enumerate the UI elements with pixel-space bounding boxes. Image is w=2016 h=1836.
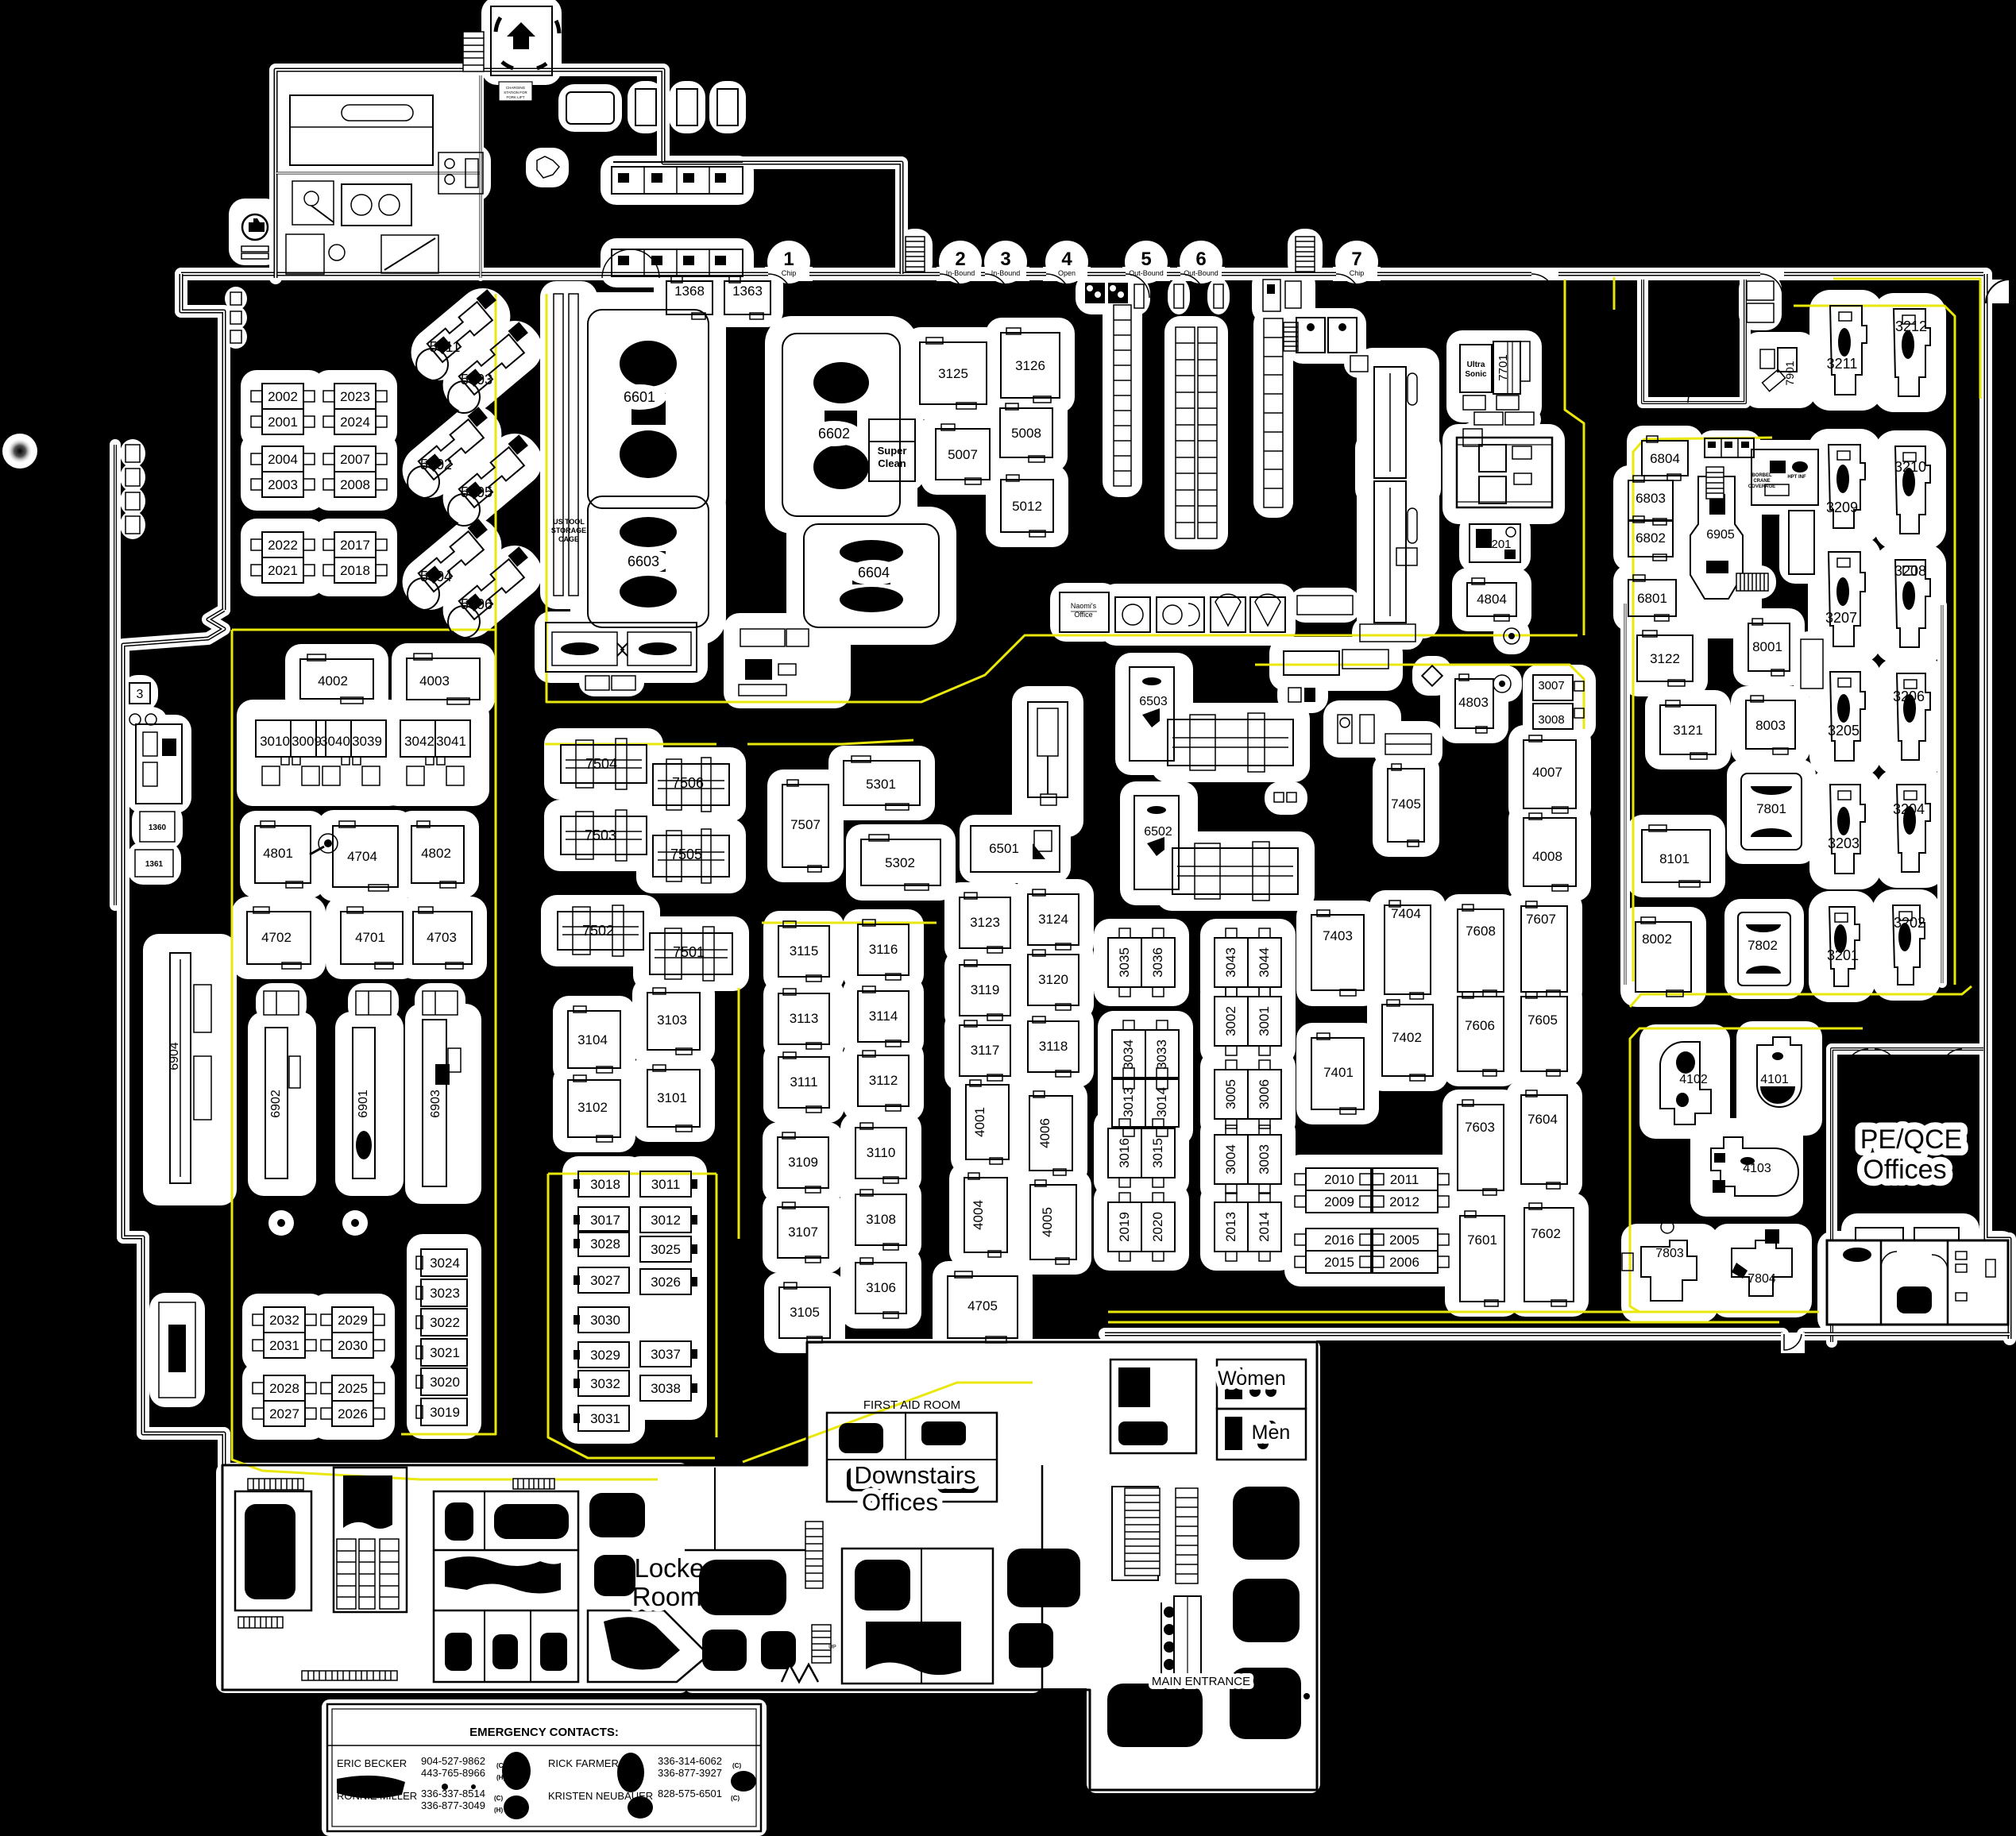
svg-text:5011: 5011 (430, 339, 461, 355)
svg-text:3018: 3018 (590, 1177, 620, 1192)
svg-text:Naomi's: Naomi's (1071, 602, 1097, 610)
svg-text:2027: 2027 (269, 1406, 299, 1421)
svg-text:2: 2 (955, 249, 965, 270)
svg-text:904-527-9862: 904-527-9862 (421, 1755, 485, 1767)
svg-text:3025: 3025 (651, 1242, 681, 1257)
svg-text:Men: Men (1252, 1421, 1291, 1444)
svg-text:336-314-6062: 336-314-6062 (658, 1755, 722, 1767)
svg-text:3005: 3005 (1223, 1079, 1238, 1109)
svg-text:7403: 7403 (1323, 928, 1353, 943)
svg-text:8001: 8001 (1752, 639, 1782, 654)
svg-text:7502: 7502 (582, 923, 614, 939)
svg-text:7603: 7603 (1465, 1120, 1495, 1135)
svg-text:3024: 3024 (430, 1255, 460, 1271)
svg-text:Offices: Offices (862, 1488, 938, 1516)
svg-text:2018: 2018 (340, 563, 370, 578)
svg-text:2024: 2024 (340, 415, 370, 430)
svg-text:2029: 2029 (338, 1313, 368, 1328)
svg-text:3028: 3028 (590, 1236, 620, 1252)
svg-text:3119: 3119 (971, 982, 1000, 997)
svg-text:3117: 3117 (971, 1043, 1000, 1058)
svg-text:5002: 5002 (420, 457, 452, 472)
svg-text:2021: 2021 (268, 563, 298, 578)
svg-text:3009: 3009 (292, 734, 322, 749)
svg-text:1361: 1361 (145, 860, 164, 869)
svg-text:CRANE: CRANE (1753, 479, 1770, 484)
svg-text:6905: 6905 (1706, 528, 1735, 542)
svg-text:8003: 8003 (1755, 718, 1786, 733)
svg-text:3209: 3209 (1826, 499, 1858, 515)
svg-text:4006: 4006 (1037, 1118, 1052, 1148)
svg-text:(C): (C) (731, 1795, 740, 1802)
svg-text:7506: 7506 (672, 775, 704, 791)
svg-text:Offices: Offices (1863, 1155, 1946, 1185)
svg-text:2022: 2022 (268, 538, 298, 553)
svg-text:5005: 5005 (461, 484, 492, 500)
svg-text:6901: 6901 (357, 1090, 370, 1118)
svg-text:336-877-3927: 336-877-3927 (658, 1767, 722, 1779)
svg-text:STORAGE: STORAGE (551, 526, 586, 534)
svg-text:4705: 4705 (967, 1298, 998, 1313)
svg-text:3106: 3106 (866, 1280, 896, 1295)
svg-text:Out-Bound: Out-Bound (1184, 269, 1218, 277)
svg-text:3031: 3031 (590, 1411, 620, 1426)
svg-text:FIRST AID ROOM: FIRST AID ROOM (863, 1398, 960, 1412)
svg-text:Sonic: Sonic (1465, 370, 1487, 379)
svg-text:7602: 7602 (1531, 1226, 1561, 1241)
svg-text:3021: 3021 (430, 1345, 460, 1360)
svg-text:6903: 6903 (429, 1090, 442, 1118)
svg-text:2007: 2007 (340, 452, 370, 467)
svg-text:7505: 7505 (670, 847, 702, 862)
svg-text:3210: 3210 (1894, 459, 1926, 475)
svg-text:Chip: Chip (1350, 269, 1365, 277)
svg-text:6802: 6802 (1636, 530, 1666, 546)
svg-text:3108: 3108 (866, 1212, 896, 1227)
svg-text:3001: 3001 (1257, 1006, 1272, 1036)
svg-text:6902: 6902 (269, 1090, 283, 1118)
svg-text:3115: 3115 (790, 943, 819, 958)
svg-text:3103: 3103 (657, 1012, 687, 1028)
svg-text:2016: 2016 (1324, 1232, 1354, 1248)
svg-text:(C): (C) (494, 1795, 503, 1802)
svg-text:7501: 7501 (673, 944, 705, 960)
svg-text:4004: 4004 (971, 1200, 986, 1230)
svg-text:3006: 3006 (1257, 1079, 1272, 1109)
svg-text:3027: 3027 (590, 1273, 620, 1288)
svg-text:2028: 2028 (269, 1381, 299, 1396)
svg-text:3114: 3114 (869, 1009, 898, 1024)
svg-text:3019: 3019 (430, 1405, 460, 1420)
svg-text:2011: 2011 (1390, 1172, 1419, 1187)
svg-text:6602: 6602 (818, 426, 850, 442)
svg-text:3004: 3004 (1223, 1144, 1238, 1174)
svg-text:3044: 3044 (1257, 947, 1272, 978)
svg-text:5006: 5006 (461, 596, 492, 612)
svg-text:HPT INF: HPT INF (1787, 475, 1806, 480)
svg-text:4703: 4703 (427, 930, 457, 945)
svg-text:6804: 6804 (1650, 451, 1680, 466)
svg-text:ERIC BECKER: ERIC BECKER (337, 1757, 407, 1769)
svg-text:3109: 3109 (788, 1155, 818, 1170)
svg-text:2009: 2009 (1324, 1194, 1354, 1209)
svg-text:3205: 3205 (1828, 723, 1860, 739)
svg-text:2008: 2008 (340, 477, 370, 492)
svg-text:Open: Open (1058, 269, 1076, 277)
svg-text:7901: 7901 (1783, 361, 1796, 385)
svg-text:4101: 4101 (1760, 1073, 1789, 1086)
svg-text:1363: 1363 (732, 283, 763, 299)
svg-text:5: 5 (1141, 249, 1151, 270)
svg-text:3039: 3039 (352, 734, 382, 749)
svg-text:7404: 7404 (1391, 906, 1421, 921)
svg-text:7402: 7402 (1392, 1030, 1422, 1045)
svg-text:3206: 3206 (1893, 688, 1925, 704)
svg-text:3207: 3207 (1825, 610, 1857, 626)
svg-text:4005: 4005 (1040, 1207, 1055, 1237)
svg-text:8002: 8002 (1642, 931, 1672, 947)
svg-text:4801: 4801 (263, 846, 293, 861)
svg-text:FORK LIFT: FORK LIFT (506, 95, 524, 99)
svg-text:2015: 2015 (1324, 1255, 1354, 1270)
svg-text:2023: 2023 (340, 389, 370, 404)
svg-text:3034: 3034 (1121, 1039, 1136, 1070)
svg-text:Ultra: Ultra (1467, 361, 1485, 369)
svg-text:6: 6 (1195, 249, 1206, 270)
svg-text:2013: 2013 (1223, 1212, 1238, 1242)
svg-text:3203: 3203 (1828, 835, 1860, 851)
svg-text:2004: 2004 (268, 452, 298, 467)
svg-text:3120: 3120 (1038, 972, 1068, 987)
svg-text:Out-Bound: Out-Bound (1129, 269, 1164, 277)
svg-text:2005: 2005 (1389, 1232, 1419, 1248)
svg-text:Super: Super (878, 445, 907, 457)
svg-text:4008: 4008 (1532, 849, 1562, 864)
svg-text:7701: 7701 (1497, 354, 1510, 380)
svg-text:3002: 3002 (1223, 1006, 1238, 1036)
svg-text:COVERAGE: COVERAGE (1748, 484, 1775, 489)
svg-text:2025: 2025 (338, 1381, 368, 1396)
svg-text:3043: 3043 (1223, 947, 1238, 978)
svg-text:CHARGING: CHARGING (506, 86, 526, 90)
svg-text:Chip: Chip (782, 269, 797, 277)
svg-text:2006: 2006 (1389, 1255, 1419, 1270)
svg-text:3014: 3014 (1154, 1087, 1169, 1117)
svg-text:6904: 6904 (168, 1042, 181, 1070)
svg-text:3123: 3123 (970, 915, 1000, 930)
svg-text:3: 3 (1000, 249, 1010, 270)
svg-text:4102: 4102 (1679, 1073, 1708, 1086)
svg-text:7405: 7405 (1391, 796, 1421, 812)
svg-text:3042: 3042 (404, 734, 434, 749)
svg-text:3125: 3125 (938, 366, 968, 381)
svg-text:3202: 3202 (1894, 915, 1925, 931)
svg-text:336-877-3049: 336-877-3049 (421, 1799, 485, 1811)
svg-text:7804: 7804 (1748, 1272, 1776, 1286)
svg-text:4701: 4701 (355, 930, 385, 945)
svg-text:UP: UP (828, 1645, 836, 1650)
svg-text:7606: 7606 (1465, 1018, 1495, 1033)
svg-text:2001: 2001 (268, 415, 298, 430)
svg-text:3101: 3101 (657, 1090, 687, 1105)
svg-text:RICK FARMER: RICK FARMER (548, 1757, 619, 1769)
svg-text:4704: 4704 (347, 849, 377, 864)
svg-text:3003: 3003 (1257, 1144, 1272, 1174)
svg-text:3110: 3110 (867, 1145, 896, 1160)
svg-text:3112: 3112 (869, 1073, 898, 1088)
svg-text:MAIN ENTRANCE: MAIN ENTRANCE (1152, 1675, 1250, 1688)
svg-text:3017: 3017 (590, 1213, 620, 1228)
svg-text:2014: 2014 (1257, 1212, 1272, 1242)
svg-text:3032: 3032 (590, 1376, 620, 1391)
svg-text:3023: 3023 (430, 1286, 460, 1301)
svg-text:Office: Office (1074, 611, 1092, 619)
svg-text:7801: 7801 (1756, 801, 1786, 816)
svg-text:3008: 3008 (1538, 713, 1564, 727)
svg-text:3016: 3016 (1117, 1138, 1132, 1168)
svg-text:4803: 4803 (1458, 695, 1489, 710)
svg-text:6603: 6603 (628, 553, 659, 569)
svg-text:(C): (C) (732, 1762, 741, 1769)
svg-text:2019: 2019 (1117, 1212, 1132, 1242)
svg-text:3010: 3010 (260, 734, 290, 749)
svg-text:7608: 7608 (1466, 924, 1496, 939)
svg-text:In-Bound: In-Bound (991, 269, 1021, 277)
svg-text:5302: 5302 (885, 855, 915, 870)
svg-text:US TOOL: US TOOL (553, 518, 585, 526)
svg-text:3037: 3037 (651, 1347, 681, 1362)
svg-text:3029: 3029 (590, 1348, 620, 1363)
svg-text:Clean: Clean (878, 457, 906, 469)
svg-text:7507: 7507 (790, 817, 821, 832)
svg-text:5004: 5004 (420, 569, 452, 584)
svg-text:3041: 3041 (436, 734, 466, 749)
svg-text:3: 3 (137, 688, 144, 701)
svg-text:7: 7 (1351, 249, 1361, 270)
svg-text:4001: 4001 (972, 1107, 987, 1137)
svg-text:In-Bound: In-Bound (946, 269, 975, 277)
svg-text:3121: 3121 (1673, 723, 1703, 738)
svg-text:7601: 7601 (1467, 1232, 1497, 1248)
svg-text:5008: 5008 (1011, 426, 1041, 441)
svg-text:3030: 3030 (590, 1313, 620, 1328)
svg-text:7605: 7605 (1527, 1012, 1558, 1028)
svg-text:3212: 3212 (1895, 318, 1927, 334)
svg-text:3201: 3201 (1827, 947, 1859, 963)
svg-text:7604: 7604 (1527, 1112, 1558, 1127)
svg-text:3035: 3035 (1117, 947, 1132, 978)
svg-text:7803: 7803 (1655, 1247, 1684, 1260)
svg-text:3015: 3015 (1150, 1138, 1165, 1168)
svg-text:4702: 4702 (261, 930, 292, 945)
svg-text:(H): (H) (494, 1807, 503, 1814)
svg-text:STATION FOR: STATION FOR (504, 91, 527, 94)
svg-text:2032: 2032 (269, 1313, 299, 1328)
svg-text:5301: 5301 (866, 777, 896, 792)
svg-text:4002: 4002 (318, 673, 348, 688)
svg-text:3007: 3007 (1538, 679, 1564, 692)
svg-text:5012: 5012 (1012, 499, 1042, 514)
svg-text:828-575-6501: 828-575-6501 (658, 1788, 722, 1799)
svg-text:4802: 4802 (421, 846, 451, 861)
svg-text:3211: 3211 (1827, 356, 1858, 372)
svg-text:3038: 3038 (651, 1381, 681, 1396)
svg-text:7802: 7802 (1748, 938, 1778, 953)
svg-text:3204: 3204 (1893, 801, 1925, 817)
svg-text:PE/QCE: PE/QCE (1860, 1124, 1962, 1155)
svg-text:Women: Women (1218, 1367, 1286, 1390)
svg-text:3022: 3022 (430, 1315, 460, 1330)
svg-text:3104: 3104 (577, 1032, 608, 1047)
svg-text:4103: 4103 (1743, 1162, 1771, 1175)
svg-text:3208: 3208 (1894, 563, 1926, 579)
svg-text:BORBEL: BORBEL (1751, 473, 1772, 478)
svg-text:6502: 6502 (1144, 825, 1172, 839)
svg-text:2017: 2017 (340, 538, 370, 553)
svg-text:3011: 3011 (651, 1177, 681, 1192)
svg-text:4804: 4804 (1477, 592, 1507, 607)
svg-text:6503: 6503 (1139, 695, 1168, 708)
svg-text:3107: 3107 (788, 1225, 818, 1240)
svg-text:3111: 3111 (790, 1074, 817, 1090)
svg-text:6601: 6601 (624, 389, 655, 405)
svg-text:3012: 3012 (651, 1213, 681, 1228)
svg-text:7401: 7401 (1323, 1065, 1354, 1080)
svg-text:6604: 6604 (858, 565, 890, 580)
svg-text:4003: 4003 (419, 673, 450, 688)
svg-text:2012: 2012 (1389, 1194, 1419, 1209)
svg-text:3026: 3026 (651, 1275, 681, 1290)
svg-text:1368: 1368 (674, 283, 705, 299)
svg-text:2030: 2030 (338, 1338, 368, 1353)
svg-text:3036: 3036 (1150, 947, 1165, 978)
svg-text:3102: 3102 (577, 1100, 608, 1115)
svg-text:3013: 3013 (1121, 1087, 1136, 1117)
svg-text:4007: 4007 (1532, 765, 1562, 780)
svg-text:Downstairs: Downstairs (854, 1461, 975, 1489)
svg-text:EMERGENCY CONTACTS:: EMERGENCY CONTACTS: (469, 1726, 619, 1739)
svg-text:3118: 3118 (1039, 1039, 1068, 1054)
svg-text:201: 201 (1491, 538, 1511, 551)
svg-text:1: 1 (783, 249, 794, 270)
svg-text:4: 4 (1061, 249, 1072, 270)
svg-text:2026: 2026 (338, 1406, 368, 1421)
svg-text:2010: 2010 (1324, 1172, 1354, 1187)
svg-text:2002: 2002 (268, 389, 298, 404)
svg-text:3105: 3105 (790, 1305, 820, 1320)
svg-text:7503: 7503 (585, 827, 616, 843)
svg-text:6801: 6801 (1637, 591, 1667, 606)
svg-text:1360: 1360 (149, 823, 167, 832)
svg-text:2003: 2003 (268, 477, 298, 492)
svg-text:443-765-8966: 443-765-8966 (421, 1767, 485, 1779)
svg-text:3040: 3040 (320, 734, 350, 749)
svg-text:7607: 7607 (1526, 912, 1556, 927)
svg-text:2031: 2031 (269, 1338, 299, 1353)
svg-text:5003: 5003 (461, 372, 492, 388)
svg-text:6803: 6803 (1636, 491, 1666, 506)
svg-text:8101: 8101 (1659, 851, 1690, 866)
svg-text:3033: 3033 (1154, 1039, 1169, 1070)
svg-text:2020: 2020 (1150, 1212, 1165, 1242)
svg-text:3020: 3020 (430, 1375, 460, 1390)
svg-text:6501: 6501 (989, 841, 1019, 856)
svg-text:3126: 3126 (1015, 358, 1045, 373)
svg-text:336-337-8514: 336-337-8514 (421, 1788, 485, 1799)
svg-text:3113: 3113 (790, 1011, 819, 1026)
svg-text:5007: 5007 (948, 447, 978, 462)
svg-text:3122: 3122 (1650, 651, 1680, 666)
svg-text:3124: 3124 (1038, 912, 1068, 927)
svg-text:7504: 7504 (585, 756, 617, 772)
svg-text:3116: 3116 (869, 942, 898, 957)
svg-text:CAGE: CAGE (558, 535, 579, 543)
